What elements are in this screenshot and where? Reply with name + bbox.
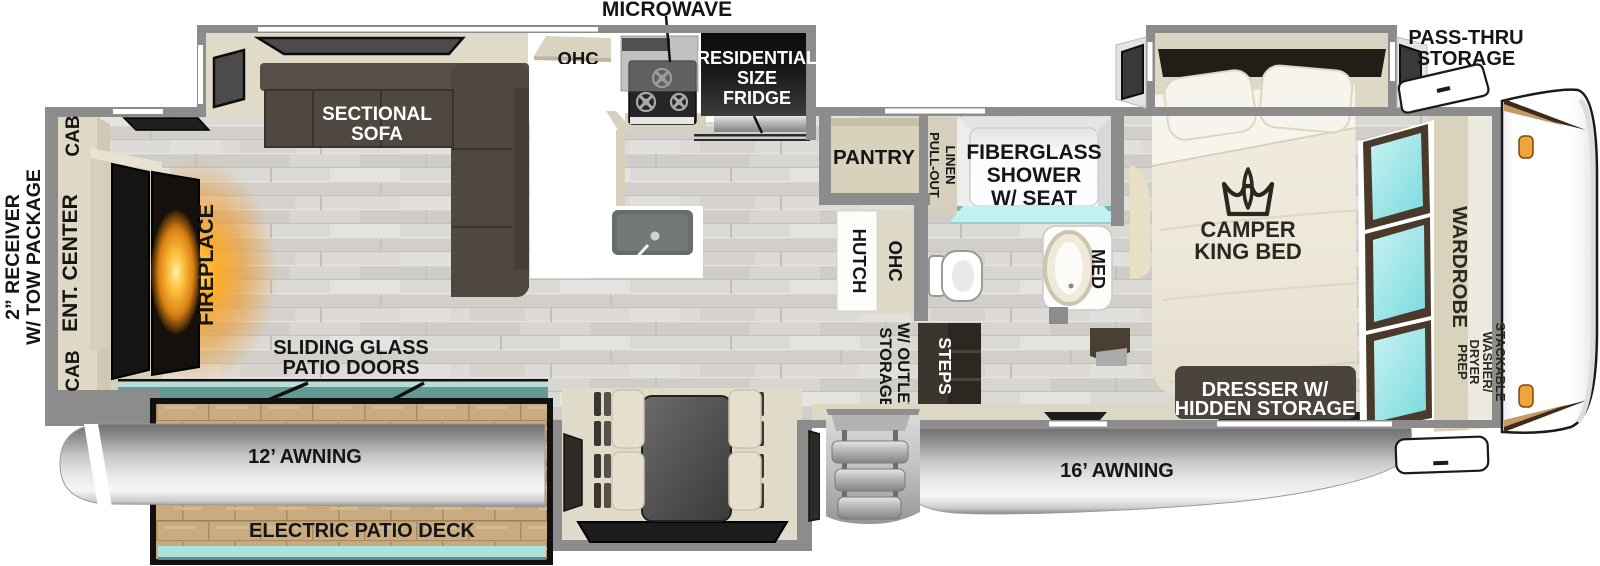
svg-text:PASS-THRU: PASS-THRU bbox=[1408, 27, 1523, 49]
svg-text:16’ AWNING: 16’ AWNING bbox=[1060, 460, 1174, 482]
svg-text:HUTCH: HUTCH bbox=[849, 229, 870, 294]
svg-text:LINEN: LINEN bbox=[943, 146, 958, 185]
svg-text:STACKABLE: STACKABLE bbox=[1493, 322, 1508, 402]
svg-text:FIREPLACE: FIREPLACE bbox=[194, 204, 218, 326]
svg-text:PATIO DOORS: PATIO DOORS bbox=[282, 357, 419, 379]
svg-text:DRYER: DRYER bbox=[1467, 339, 1482, 385]
svg-text:MICROWAVE: MICROWAVE bbox=[602, 0, 732, 21]
svg-text:PANTRY: PANTRY bbox=[833, 146, 915, 169]
svg-text:FRIDGE: FRIDGE bbox=[723, 88, 791, 108]
svg-text:WARDROBE: WARDROBE bbox=[1448, 206, 1471, 328]
svg-text:STEPS: STEPS bbox=[935, 337, 955, 394]
svg-text:W/ SEAT: W/ SEAT bbox=[991, 187, 1077, 210]
svg-text:OHC: OHC bbox=[885, 240, 906, 281]
svg-text:WASHER/: WASHER/ bbox=[1480, 332, 1495, 393]
svg-text:SECTIONAL: SECTIONAL bbox=[322, 104, 432, 125]
svg-text:KING BED: KING BED bbox=[1194, 239, 1302, 264]
svg-text:12’ AWNING: 12’ AWNING bbox=[248, 446, 362, 468]
svg-text:SLIDING GLASS: SLIDING GLASS bbox=[273, 337, 429, 359]
svg-text:SIZE: SIZE bbox=[737, 68, 777, 88]
svg-text:W/ TOW PACKAGE: W/ TOW PACKAGE bbox=[23, 169, 45, 345]
svg-text:RESIDENTIAL: RESIDENTIAL bbox=[697, 48, 817, 68]
svg-text:ELECTRIC PATIO DECK: ELECTRIC PATIO DECK bbox=[249, 520, 475, 542]
svg-text:CAB: CAB bbox=[63, 115, 84, 156]
svg-text:STORAGE: STORAGE bbox=[1417, 48, 1516, 70]
svg-text:HIDDEN STORAGE: HIDDEN STORAGE bbox=[1175, 398, 1356, 420]
svg-text:STORAGE: STORAGE bbox=[876, 327, 894, 408]
svg-text:W/ OUTLET: W/ OUTLET bbox=[894, 323, 912, 414]
svg-text:SHOWER: SHOWER bbox=[987, 164, 1082, 187]
svg-text:2” RECEIVER: 2” RECEIVER bbox=[2, 194, 24, 320]
svg-text:SOFA: SOFA bbox=[351, 124, 403, 145]
svg-text:MED: MED bbox=[1088, 249, 1108, 289]
svg-text:CAB: CAB bbox=[63, 350, 84, 391]
svg-text:ENT. CENTER: ENT. CENTER bbox=[59, 194, 82, 332]
svg-text:FIBERGLASS: FIBERGLASS bbox=[966, 141, 1101, 164]
svg-text:PULL-OUT: PULL-OUT bbox=[927, 132, 942, 198]
